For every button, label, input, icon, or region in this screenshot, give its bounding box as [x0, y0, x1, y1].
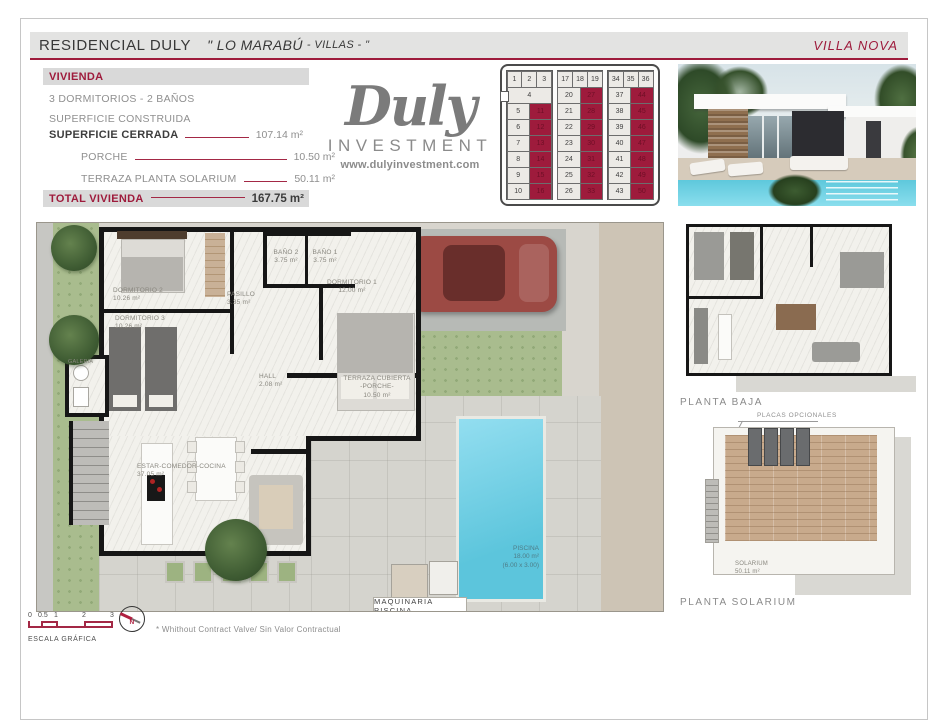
room-name: DORMITORIO 2	[113, 287, 163, 294]
planta-baja-miniplan	[680, 224, 916, 396]
wall-tv	[251, 449, 311, 454]
room-name: HALL	[259, 373, 276, 380]
laundry-sink	[73, 387, 89, 407]
vivienda-header-bar: VIVIENDA	[43, 68, 309, 85]
bedrooms-line: 3 DORMITORIOS - 2 BAÑOS	[49, 93, 195, 105]
room-name: BAÑO 2	[273, 249, 298, 256]
hob-burner	[157, 487, 162, 492]
dining-chair	[235, 441, 245, 453]
grid-group: 1718192027212822292330243125322633	[557, 70, 604, 200]
plot-cell: 22	[557, 119, 580, 136]
scale-segment	[41, 621, 56, 623]
surface-row-label: TERRAZA PLANTA SOLARIUM	[81, 173, 237, 185]
plot-cell: 20	[557, 87, 580, 104]
pool-equipment-pad	[391, 564, 428, 598]
solarium-label: SOLARIUM 50.11 m²	[735, 561, 768, 577]
room-area: 2.08 m²	[259, 381, 282, 388]
glass-doors	[748, 116, 792, 163]
car-hood	[519, 244, 549, 302]
planta-solarium-label: PLANTA SOLARIUM	[680, 597, 797, 608]
mini-kitchen	[694, 308, 708, 364]
wall	[319, 288, 323, 360]
plot-cell: 14	[529, 151, 552, 168]
plot-cell: 50	[630, 183, 653, 200]
plot-cell: 37	[608, 87, 631, 104]
car-roof-glass	[443, 245, 505, 301]
wall	[760, 227, 763, 297]
room-label-estar: ESTAR-COMEDOR-COCINA 37.05 m²	[137, 463, 226, 480]
logo-investment-text: INVESTMENT	[325, 136, 495, 156]
plot-cell: 35	[623, 71, 639, 88]
surface-row-value: 50.11 m²	[294, 173, 335, 185]
pool-dims: (6.00 x 3.00)	[503, 562, 540, 569]
dining-chair	[235, 481, 245, 493]
logo-wordmark: Duly	[325, 78, 495, 135]
plot-cell: 34	[608, 71, 624, 88]
room-label-hall: HALL 2.08 m²	[259, 373, 282, 390]
room-name: GALERIA	[68, 359, 93, 365]
plot-cell: 12	[529, 119, 552, 136]
mini-bed	[840, 252, 884, 288]
exterior-stairs	[69, 421, 109, 525]
plot-cell: 25	[557, 167, 580, 184]
room-label-dormitorio3: DORMITORIO 3 10.26 m²	[115, 315, 165, 332]
dining-chair	[235, 461, 245, 473]
plot-cell: 21	[557, 103, 580, 120]
room-name: TERRAZA CUBIERTA	[343, 375, 410, 382]
maquinaria-piscina-label: MAQUINARIA PISCINA	[373, 597, 467, 612]
room-area: 3.35 m²	[227, 299, 250, 306]
page-title: RESIDENCIAL DULY	[39, 37, 191, 54]
wall	[810, 227, 813, 267]
pool-label: PISCINA 18.00 m² (6.00 x 3.00)	[477, 545, 539, 570]
room-name: BAÑO 1	[312, 249, 337, 256]
total-value: 167.75 m²	[252, 193, 304, 205]
pool-equipment-box	[429, 561, 458, 595]
plot-cell: 11	[529, 103, 552, 120]
placas-opcionales-label: PLACAS OPCIONALES	[757, 412, 837, 419]
side-path	[37, 223, 53, 611]
plot-cell: 17	[557, 71, 573, 88]
plot-cell: 46	[630, 119, 653, 136]
solar-panel	[796, 428, 810, 466]
leader-line	[135, 159, 287, 160]
furniture-wardrobe	[205, 233, 225, 297]
page-subtitle-small: - VILLAS - "	[307, 39, 370, 51]
room-area: 3.75 m²	[313, 257, 336, 264]
room-area: 10.50 m²	[363, 392, 390, 399]
solar-panel	[748, 428, 762, 466]
plot-cell: 23	[557, 135, 580, 152]
tree	[51, 225, 97, 271]
solar-panel	[780, 428, 794, 466]
room-label-pasillo: PASILLO 3.35 m²	[227, 291, 255, 308]
plot-cell: 18	[572, 71, 588, 88]
leader-line	[185, 137, 248, 138]
surface-row-value: 107.14 m²	[256, 129, 303, 141]
mini-bed	[730, 232, 754, 280]
scale-tick: 3	[110, 612, 114, 619]
planter	[165, 561, 185, 583]
room-name: DORMITORIO 3	[115, 315, 165, 322]
plot-cell: 31	[580, 151, 603, 168]
mini-sofa	[812, 342, 860, 362]
room-name: DORMITORIO 1	[327, 279, 377, 286]
compass-icon: N	[119, 606, 145, 632]
mini-island	[718, 314, 732, 360]
surface-row-label: SUPERFICIE CERRADA	[49, 129, 178, 141]
header-bar: RESIDENCIAL DULY " LO MARABÚ - VILLAS - …	[30, 32, 908, 60]
surface-row: TERRAZA PLANTA SOLARIUM 50.11 m²	[49, 173, 335, 185]
site-plan-grid: 1234511612713814915101617181920272128222…	[500, 64, 660, 206]
mini-patio	[736, 376, 916, 392]
plot-cell: 43	[608, 183, 631, 200]
plot-cell: 6	[507, 119, 530, 136]
plot-cell: 19	[587, 71, 603, 88]
main-floor-plan: PISCINA 18.00 m² (6.00 x 3.00) MAQUINARI…	[36, 222, 664, 612]
scale-label: ESCALA GRÁFICA	[28, 636, 97, 643]
outdoor-sofa	[790, 156, 848, 170]
room-name2: -PORCHE-	[360, 383, 394, 390]
room-name: ESTAR-COMEDOR-COCINA	[137, 463, 226, 470]
plot-cell: 32	[580, 167, 603, 184]
surface-row-label: PORCHE	[81, 151, 128, 163]
furniture-blanket	[121, 257, 183, 291]
leader-line	[738, 421, 818, 422]
car	[409, 236, 557, 312]
plot-cell: 26	[557, 183, 580, 200]
room-label-terraza: TERRAZA CUBIERTA -PORCHE- 10.50 m²	[335, 375, 419, 400]
pool-steps	[826, 181, 898, 201]
plot-cell: 2	[521, 71, 537, 88]
room-label-bano2: BAÑO 2 3.75 m²	[268, 249, 304, 266]
garden-strip-left	[53, 223, 99, 612]
solarium-stairs	[705, 479, 719, 543]
swimming-pool	[456, 416, 546, 602]
room-label-dormitorio1: DORMITORIO 1 12.00 m²	[319, 279, 385, 296]
room-area: 50.11 m²	[735, 569, 760, 575]
plot-cell: 28	[580, 103, 603, 120]
scale-tick-mark	[111, 621, 113, 628]
plot-cell: 10	[507, 183, 530, 200]
plot-cell: 49	[630, 167, 653, 184]
scale-tick: 0.5	[38, 612, 48, 619]
villa-render-photo	[678, 64, 916, 206]
plot-cell: 45	[630, 103, 653, 120]
dining-chair	[187, 441, 197, 453]
plot-cell: 24	[557, 151, 580, 168]
plot-cell: 7	[507, 135, 530, 152]
room-area: 37.05 m²	[137, 471, 164, 478]
scale-segment	[84, 621, 111, 623]
vacant-ground	[599, 223, 663, 611]
plot-cell: 3	[536, 71, 552, 88]
plot-cell: 4	[507, 87, 553, 104]
room-label-bano1: BAÑO 1 3.75 m²	[307, 249, 343, 266]
plot-cell: 44	[630, 87, 653, 104]
page-subtitle: " LO MARABÚ	[207, 37, 303, 53]
plot-cell: 8	[507, 151, 530, 168]
room-label-galeria: GALERIA	[68, 359, 93, 366]
furniture-rug	[259, 485, 293, 529]
grid-group: 12345116127138149151016	[506, 70, 553, 200]
compass-north-letter: N	[130, 619, 135, 626]
scale-tick: 2	[82, 612, 86, 619]
planta-baja-label: PLANTA BAJA	[680, 397, 763, 408]
furniture-blanket	[337, 313, 413, 373]
solar-panels	[748, 428, 810, 466]
villa-model-badge: VILLA NOVA	[813, 38, 898, 53]
furniture-pillow	[149, 395, 173, 407]
tree	[49, 315, 99, 365]
leader-line	[244, 181, 288, 182]
foreground-plant	[768, 174, 822, 206]
roof-slab	[694, 94, 846, 109]
total-vivienda-bar: TOTAL VIVIENDA 167.75 m²	[43, 190, 309, 207]
planta-solarium-miniplan: SOLARIUM 50.11 m²	[705, 427, 917, 595]
mini-dining-table	[776, 304, 816, 330]
plot-cell: 5	[507, 103, 530, 120]
surface-row: SUPERFICIE CERRADA 107.14 m²	[49, 129, 303, 141]
scale-tick: 0	[28, 612, 32, 619]
furniture-pillow	[113, 395, 137, 407]
plot-cell: 29	[580, 119, 603, 136]
wall	[263, 232, 267, 288]
plot-cell: 30	[580, 135, 603, 152]
logo-website-url: www.dulyinvestment.com	[325, 159, 495, 171]
vivienda-label: VIVIENDA	[49, 71, 103, 83]
solar-panel	[764, 428, 778, 466]
plot-cell: 41	[608, 151, 631, 168]
plot-cell: 39	[608, 119, 631, 136]
plot-cell: 15	[529, 167, 552, 184]
total-label: TOTAL VIVIENDA	[49, 193, 144, 205]
side-door	[866, 121, 881, 162]
plot-cell: 27	[580, 87, 603, 104]
room-area: 10.26 m²	[113, 295, 140, 302]
brochure-page: { "header": { "title": "RESIDENCIAL DULY…	[0, 0, 947, 634]
room-area: 3.75 m²	[274, 257, 297, 264]
wall	[104, 309, 232, 313]
room-label-dormitorio2: DORMITORIO 2 10.26 m²	[113, 287, 163, 304]
washer	[73, 365, 89, 381]
leader-line	[151, 197, 245, 198]
mini-bed	[694, 232, 724, 280]
room-area: 10.26 m²	[115, 323, 142, 330]
pool-area: 18.00 m²	[513, 553, 539, 560]
plot-cell: 9	[507, 167, 530, 184]
plot-cell: 42	[608, 167, 631, 184]
plot-cell: 40	[608, 135, 631, 152]
plot-cell: 47	[630, 135, 653, 152]
built-surface-line: SUPERFICIE CONSTRUIDA	[49, 113, 191, 125]
pool-name: PISCINA	[513, 545, 539, 552]
surface-row: PORCHE 10.50 m²	[49, 151, 335, 163]
mini-paving	[795, 573, 911, 595]
dining-chair	[187, 481, 197, 493]
room-name: SOLARIUM	[735, 561, 768, 567]
furniture-headboard	[117, 231, 187, 239]
plot-cell: 38	[608, 103, 631, 120]
plot-cell: 48	[630, 151, 653, 168]
wall	[689, 296, 763, 299]
scale-tick-mark	[56, 621, 58, 628]
grid-entry-tab	[500, 91, 509, 102]
scale-tick: 1	[54, 612, 58, 619]
room-name: PASILLO	[227, 291, 255, 298]
plot-cell: 1	[507, 71, 523, 88]
plot-cell: 13	[529, 135, 552, 152]
plot-cell: 16	[529, 183, 552, 200]
palm-tree	[205, 519, 267, 581]
scale-tick-mark	[28, 621, 30, 628]
disclaimer-text: * Whithout Contract Valve/ Sin Valor Con…	[156, 625, 341, 634]
plot-cell: 33	[580, 183, 603, 200]
plot-cell: 36	[638, 71, 654, 88]
company-logo: Duly INVESTMENT www.dulyinvestment.com	[325, 78, 495, 171]
grid-group: 3435363744384539464047414842494350	[607, 70, 654, 200]
planter	[277, 561, 297, 583]
room-area: 12.00 m²	[338, 287, 365, 294]
